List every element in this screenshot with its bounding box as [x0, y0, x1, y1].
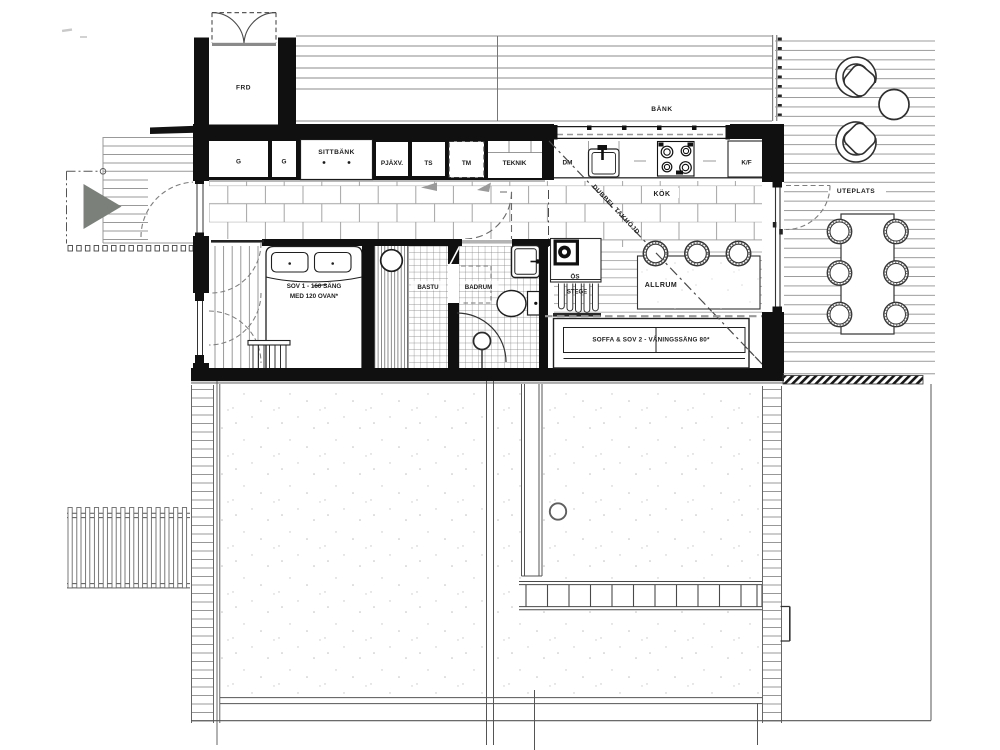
svg-text:ÖS: ÖS — [571, 274, 580, 281]
svg-text:TEKNIK: TEKNIK — [503, 160, 527, 167]
svg-text:PJÄXV.: PJÄXV. — [381, 159, 403, 167]
svg-text:STEGE: STEGE — [567, 290, 587, 296]
svg-text:UTEPLATS: UTEPLATS — [837, 188, 875, 195]
svg-text:BÄNK: BÄNK — [651, 105, 672, 113]
svg-text:KÖK: KÖK — [653, 189, 670, 198]
svg-text:K/F: K/F — [741, 160, 751, 167]
svg-text:G: G — [282, 159, 287, 166]
svg-text:TM: TM — [462, 160, 471, 167]
svg-text:G: G — [236, 159, 241, 166]
svg-text:MED 120 OVAN*: MED 120 OVAN* — [290, 293, 339, 300]
svg-text:TS: TS — [424, 160, 433, 167]
svg-text:ALLRUM: ALLRUM — [645, 282, 678, 289]
svg-text:SOFFA & SOV 2 - VÅNINGSSÄNG 80: SOFFA & SOV 2 - VÅNINGSSÄNG 80* — [592, 335, 710, 344]
svg-text:BADRUM: BADRUM — [465, 284, 493, 291]
svg-text:BASTU: BASTU — [417, 284, 439, 291]
svg-text:FRD: FRD — [236, 85, 251, 92]
svg-text:SITTBÄNK: SITTBÄNK — [318, 148, 355, 156]
